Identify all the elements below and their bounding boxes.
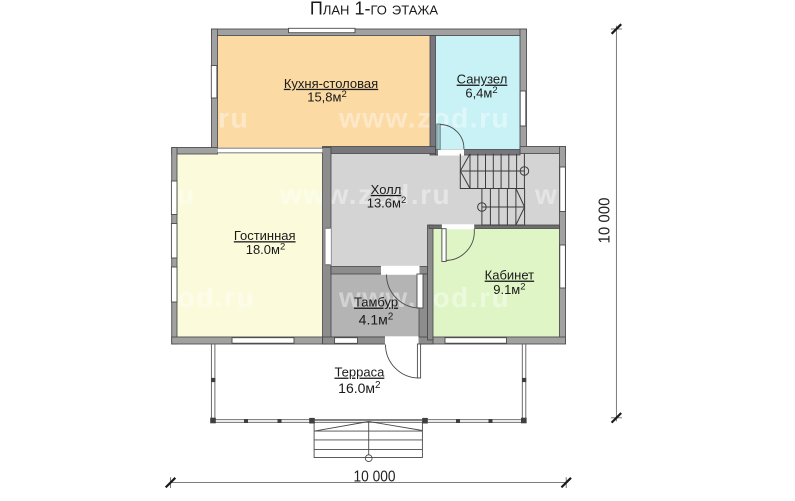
svg-text:www.zod.ru: www.zod.ru — [77, 103, 249, 134]
svg-text:10 000: 10 000 — [354, 469, 396, 486]
svg-text:Тамбур: Тамбур — [354, 295, 398, 310]
svg-text:18.0м2: 18.0м2 — [246, 242, 286, 258]
svg-text:15,8м2: 15,8м2 — [307, 89, 347, 105]
svg-text:www.zod.ru: www.zod.ru — [338, 103, 510, 134]
svg-text:16.0м2: 16.0м2 — [338, 380, 381, 396]
svg-text:Холл: Холл — [371, 182, 402, 197]
svg-text:Кабинет: Кабинет — [485, 268, 534, 283]
svg-text:Санузел: Санузел — [457, 72, 508, 87]
svg-text:План 1-го этажа: План 1-го этажа — [310, 0, 438, 19]
svg-text:Кухня-столовая: Кухня-столовая — [284, 76, 378, 91]
svg-text:Гостинная: Гостинная — [234, 228, 296, 243]
svg-text:10 000: 10 000 — [597, 197, 614, 243]
svg-text:Терраса: Терраса — [334, 365, 385, 380]
svg-text:www.zod.ru: www.zod.ru — [279, 179, 451, 210]
svg-text:www.zod.ru: www.zod.ru — [24, 179, 196, 210]
svg-text:13.6м2: 13.6м2 — [367, 195, 407, 211]
svg-text:www.zod.ru: www.zod.ru — [83, 282, 255, 313]
